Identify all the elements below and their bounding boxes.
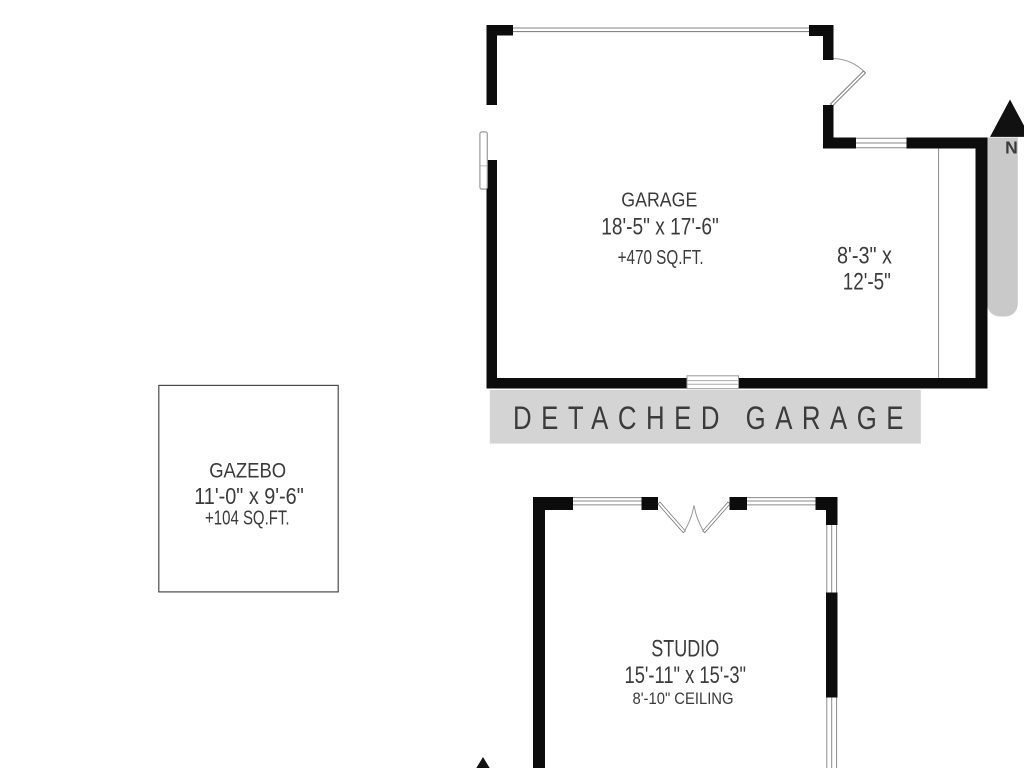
svg-text:GAZEBO: GAZEBO xyxy=(209,458,286,482)
svg-text:+104 SQ.FT.: +104 SQ.FT. xyxy=(205,508,290,530)
svg-text:STUDIO: STUDIO xyxy=(651,636,719,663)
svg-text:12'-5": 12'-5" xyxy=(843,269,891,296)
svg-text:8'-10" CEILING: 8'-10" CEILING xyxy=(633,689,734,708)
svg-text:N: N xyxy=(1005,138,1018,158)
svg-text:GARAGE: GARAGE xyxy=(621,189,697,212)
svg-text:+470 SQ.FT.: +470 SQ.FT. xyxy=(618,246,704,269)
svg-text:15'-11" x 15'-3": 15'-11" x 15'-3" xyxy=(625,662,747,689)
svg-text:18'-5" x 17'-6": 18'-5" x 17'-6" xyxy=(601,214,719,241)
svg-text:8'-3" x: 8'-3" x xyxy=(837,243,892,270)
svg-text:11'-0" x 9'-6": 11'-0" x 9'-6" xyxy=(194,483,304,509)
svg-text:DETACHED GARAGE: DETACHED GARAGE xyxy=(513,400,913,436)
